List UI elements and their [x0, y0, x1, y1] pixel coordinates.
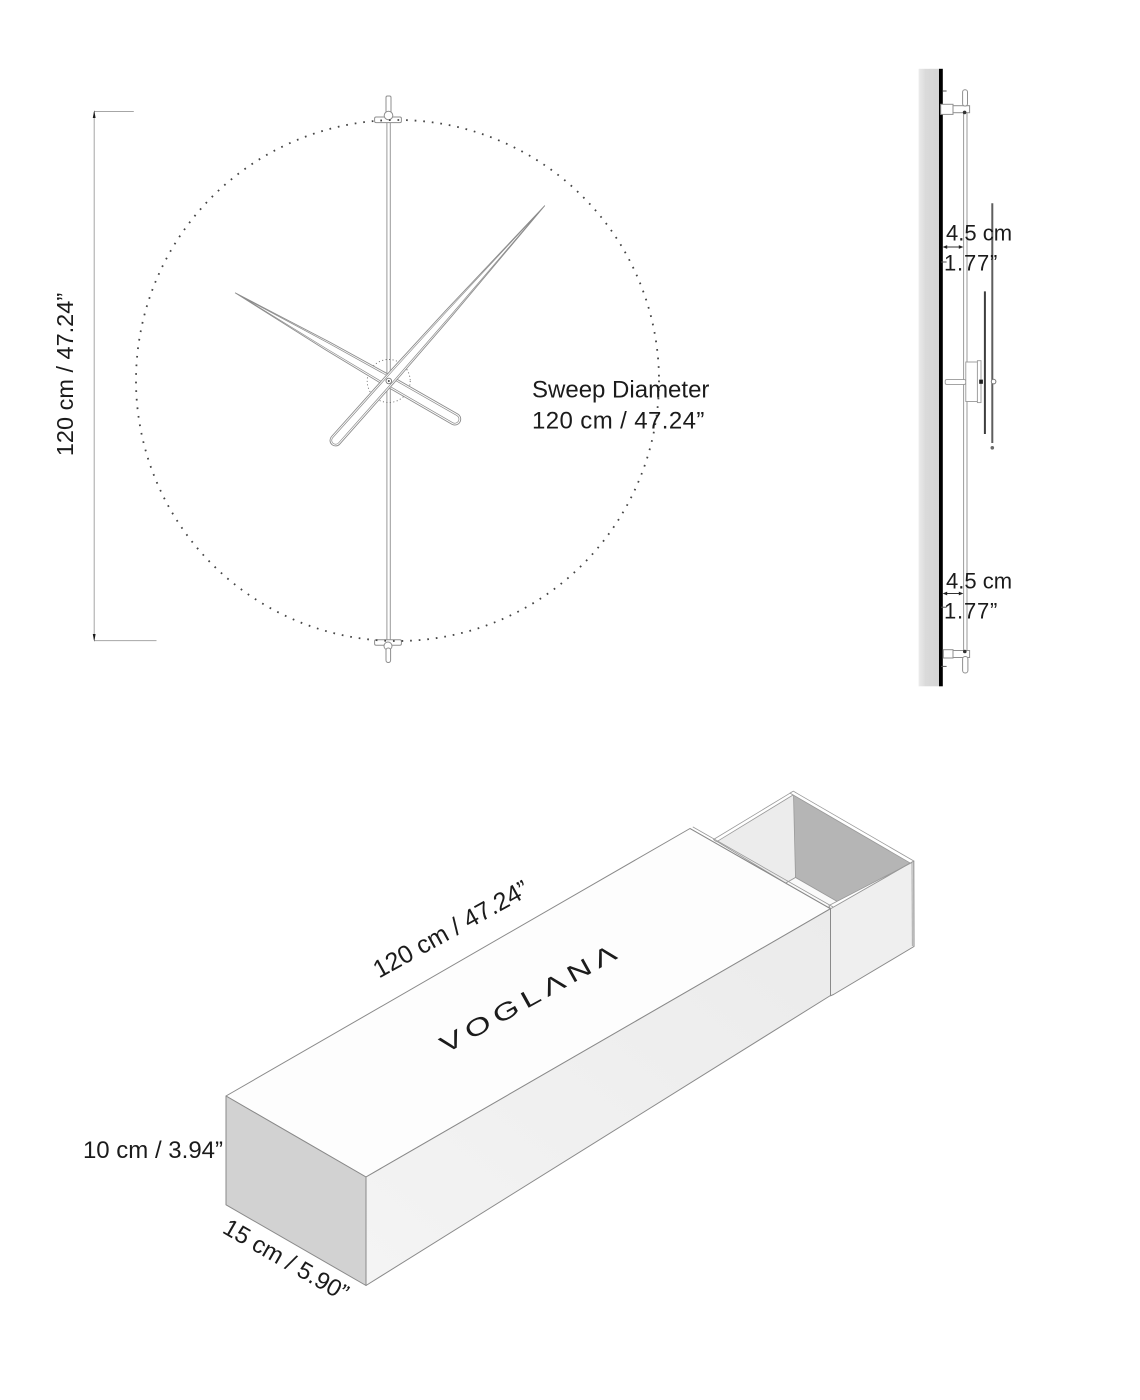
svg-text:4.5 cm: 4.5 cm [946, 221, 1012, 246]
svg-text:1.77”: 1.77” [944, 251, 998, 276]
svg-text:4.5 cm: 4.5 cm [946, 569, 1012, 594]
svg-text:Sweep Diameter: Sweep Diameter [532, 377, 709, 404]
svg-text:1.77”: 1.77” [944, 599, 998, 624]
svg-text:120 cm / 47.24”: 120 cm / 47.24” [52, 293, 78, 456]
svg-text:10 cm / 3.94”: 10 cm / 3.94” [83, 1137, 223, 1164]
svg-text:120 cm / 47.24”: 120 cm / 47.24” [532, 408, 705, 435]
